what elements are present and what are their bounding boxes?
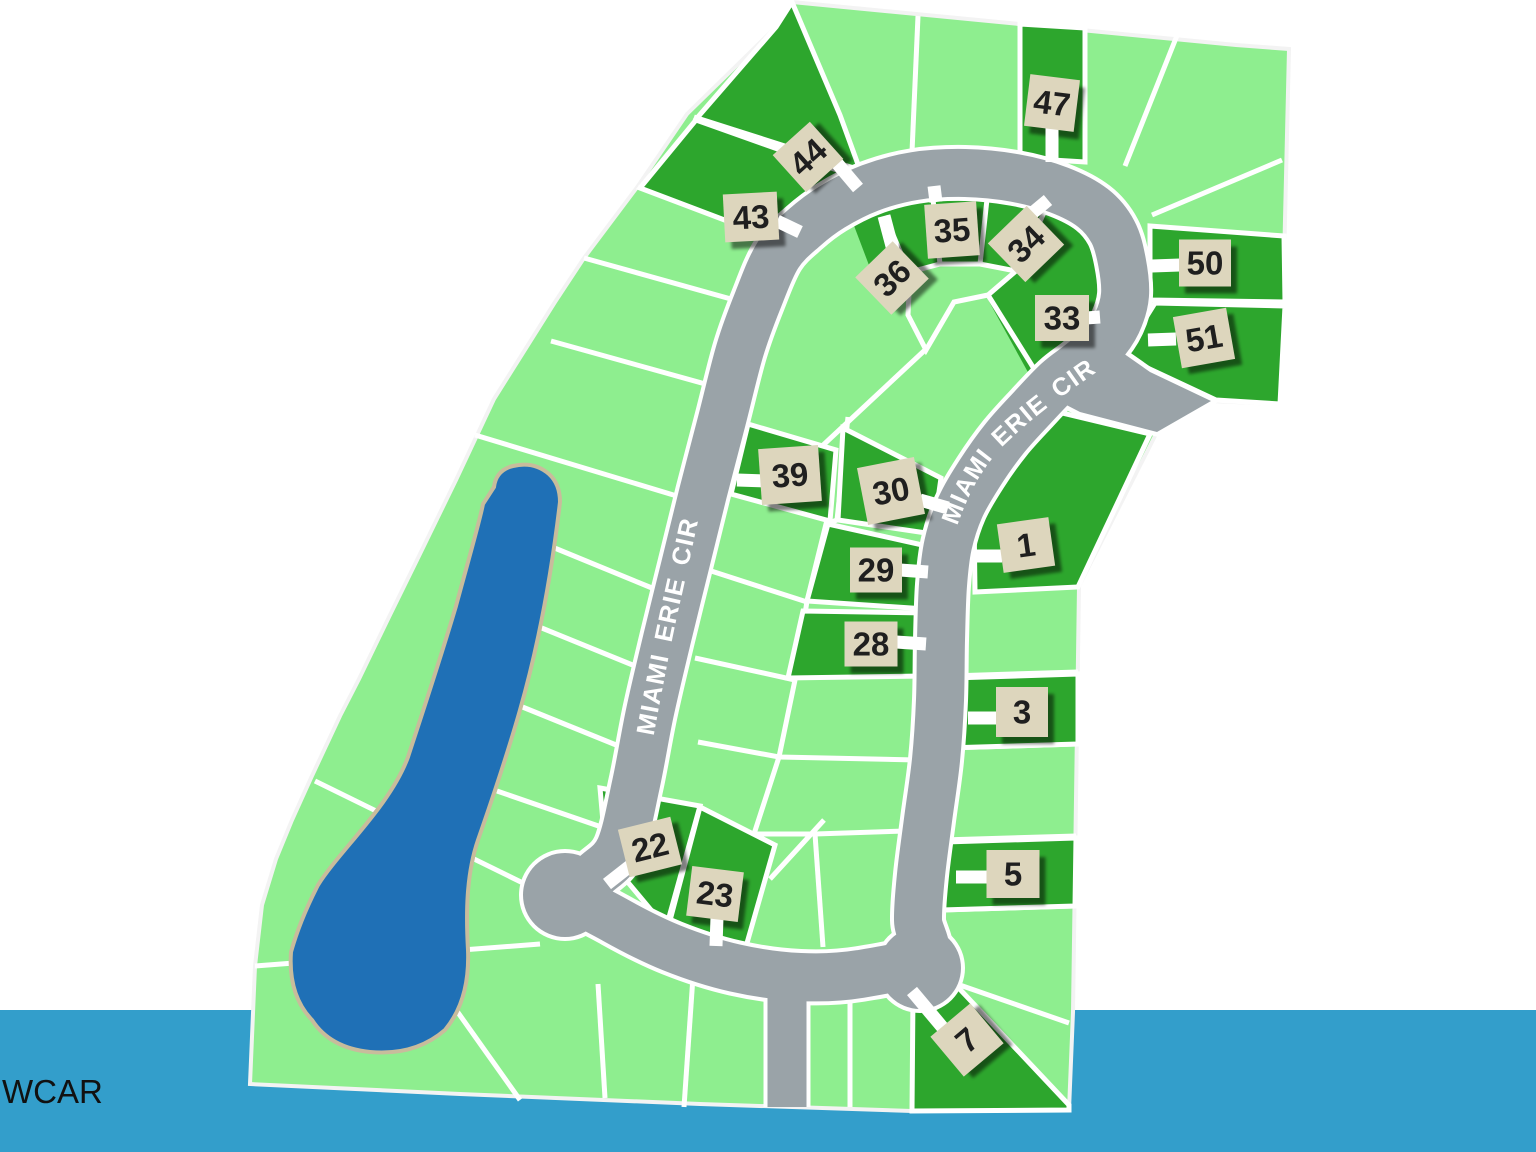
svg-text:5: 5 — [1004, 856, 1022, 893]
svg-text:51: 51 — [1183, 317, 1226, 360]
svg-text:28: 28 — [853, 626, 890, 663]
svg-text:47: 47 — [1032, 82, 1073, 123]
svg-text:WCAR: WCAR — [2, 1073, 103, 1110]
svg-text:33: 33 — [1044, 300, 1081, 337]
svg-text:50: 50 — [1187, 245, 1224, 282]
svg-text:39: 39 — [770, 455, 809, 494]
svg-text:23: 23 — [695, 873, 736, 914]
svg-text:3: 3 — [1013, 694, 1031, 731]
svg-text:30: 30 — [869, 469, 912, 512]
svg-text:43: 43 — [732, 198, 771, 237]
svg-text:29: 29 — [858, 552, 895, 589]
svg-text:35: 35 — [932, 210, 971, 249]
